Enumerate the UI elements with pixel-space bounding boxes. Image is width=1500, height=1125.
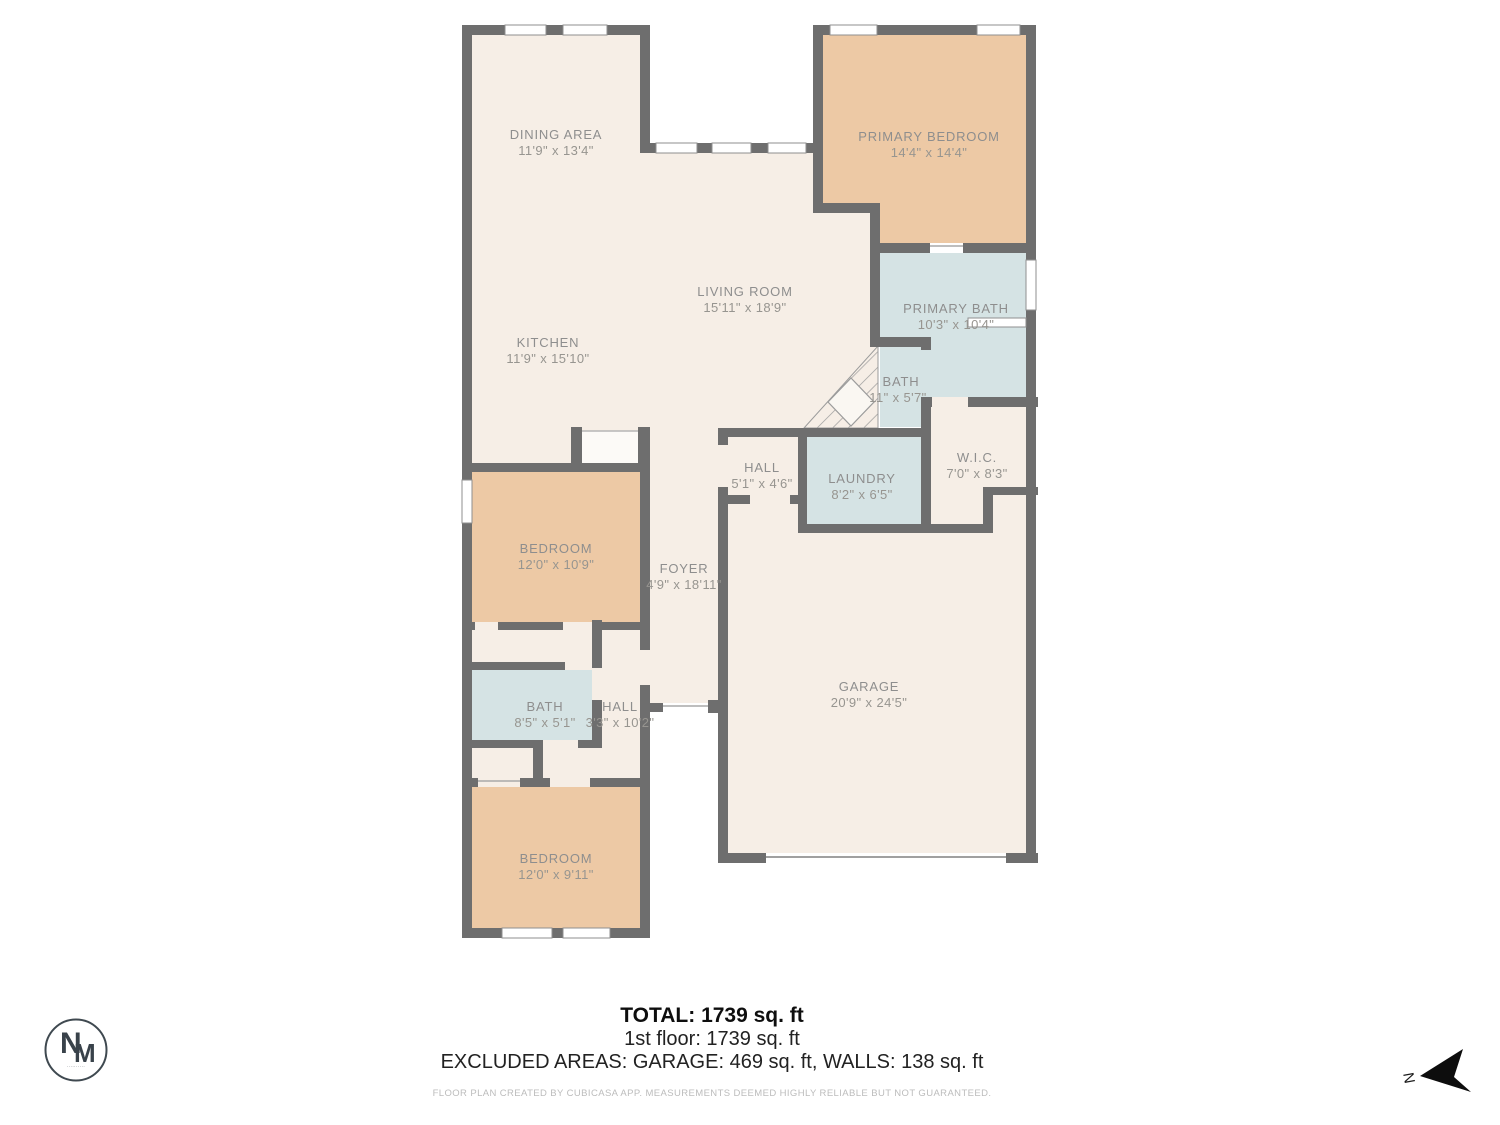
floor-plan-canvas: DINING AREA 11'9" x 13'4" PRIMARY BEDROO… (0, 0, 1500, 1125)
wall (1026, 25, 1036, 863)
wall (870, 213, 880, 347)
room-name-label: HALL (602, 699, 638, 714)
door-gap (930, 243, 963, 253)
window (505, 25, 546, 35)
window (712, 143, 751, 153)
room-dims-label: 15'11" x 18'9" (703, 300, 786, 315)
area-summary: TOTAL: 1739 sq. ft 1st floor: 1739 sq. f… (312, 1004, 1112, 1099)
window (563, 25, 607, 35)
door-gap (478, 778, 520, 787)
wall (813, 203, 880, 213)
logo-tagline: ·········· (67, 1064, 85, 1069)
floor-garage (727, 495, 1026, 853)
room-primary-bedroom-south (880, 203, 1026, 243)
wall (718, 428, 931, 437)
room-dims-label: 11'9" x 15'10" (506, 351, 589, 366)
room-name-label: BEDROOM (520, 851, 593, 866)
wall (640, 25, 650, 153)
room-dims-label: 11" x 5'7" (869, 390, 926, 405)
floor-dining-kitchen (472, 35, 650, 463)
wall (571, 427, 582, 472)
room-dims-label: 20'9" x 24'5" (831, 695, 908, 710)
room-dims-label: 5'1" x 4'6" (731, 476, 792, 491)
front-door-gap (663, 703, 708, 712)
door-gap (718, 445, 728, 487)
disclaimer-line: FLOOR PLAN CREATED BY CUBICASA APP. MEAS… (312, 1088, 1112, 1099)
room-dims-label: 11'9" x 13'4" (518, 143, 594, 158)
door-gap (550, 778, 590, 787)
room-dims-label: 10'3" x 10'4" (918, 317, 995, 332)
room-name-label: PRIMARY BEDROOM (858, 129, 1000, 144)
window (563, 928, 610, 938)
room-dims-label: 7'0" x 8'3" (946, 466, 1007, 481)
wall (798, 428, 807, 533)
room-dims-label: 3'3" x 10'2" (586, 715, 655, 730)
room-name-label: BATH (527, 699, 564, 714)
wall (462, 25, 650, 35)
window (656, 143, 697, 153)
room-name-label: BEDROOM (520, 541, 593, 556)
wall (462, 740, 602, 748)
window (502, 928, 552, 938)
room-name-label: HALL (744, 460, 780, 475)
room-name-label: LIVING ROOM (697, 284, 792, 299)
north-arrow: N (1399, 1049, 1471, 1092)
bedroom-door-alcove (582, 431, 638, 463)
wall (462, 662, 565, 670)
window (462, 480, 472, 523)
window (768, 143, 806, 153)
room-name-label: BATH (883, 374, 920, 389)
door-gap (563, 622, 592, 630)
room-dims-label: 12'0" x 9'11" (518, 867, 594, 882)
floor-plan-page: { "plan": { "rooms": [ {"name": "DINING … (0, 0, 1500, 1125)
wall (648, 703, 663, 712)
wall (983, 487, 1038, 495)
company-logo: N M ·········· (46, 1020, 107, 1081)
wall (462, 928, 650, 938)
room-name-label: GARAGE (839, 679, 899, 694)
room-name-label: W.I.C. (957, 450, 997, 465)
door-gap (932, 397, 968, 407)
door-gap (592, 668, 602, 700)
total-area-line: TOTAL: 1739 sq. ft (312, 1004, 1112, 1028)
room-name-label: DINING AREA (510, 127, 603, 142)
excluded-area-line: EXCLUDED AREAS: GARAGE: 469 sq. ft, WALL… (312, 1051, 1112, 1074)
room-name-label: LAUNDRY (828, 471, 896, 486)
room-name-label: FOYER (660, 561, 709, 576)
door-gap (750, 495, 790, 504)
window (830, 25, 877, 35)
room-name-label: KITCHEN (517, 335, 580, 350)
room-name-label: PRIMARY BATH (903, 301, 1009, 316)
room-dims-label: 12'0" x 10'9" (518, 557, 595, 572)
north-letter: N (1399, 1071, 1418, 1085)
wall (640, 463, 650, 936)
room-dims-label: 8'2" x 6'5" (831, 487, 892, 502)
door-gap (640, 650, 650, 685)
room-primary-bedroom (823, 35, 1026, 203)
room-dims-label: 8'5" x 5'1" (514, 715, 575, 730)
wall (718, 428, 728, 863)
north-arrow-dart (1420, 1049, 1471, 1092)
wall (798, 524, 993, 533)
window (1026, 260, 1036, 310)
floor-area-line: 1st floor: 1739 sq. ft (312, 1028, 1112, 1051)
wall (813, 25, 823, 213)
window (977, 25, 1020, 35)
room-dims-label: 14'4" x 14'4" (891, 145, 968, 160)
door-gap (475, 622, 498, 630)
room-dims-label: 4'9" x 18'11" (646, 577, 722, 592)
wall (708, 700, 718, 713)
wall (462, 463, 650, 472)
door-gap (543, 740, 578, 748)
